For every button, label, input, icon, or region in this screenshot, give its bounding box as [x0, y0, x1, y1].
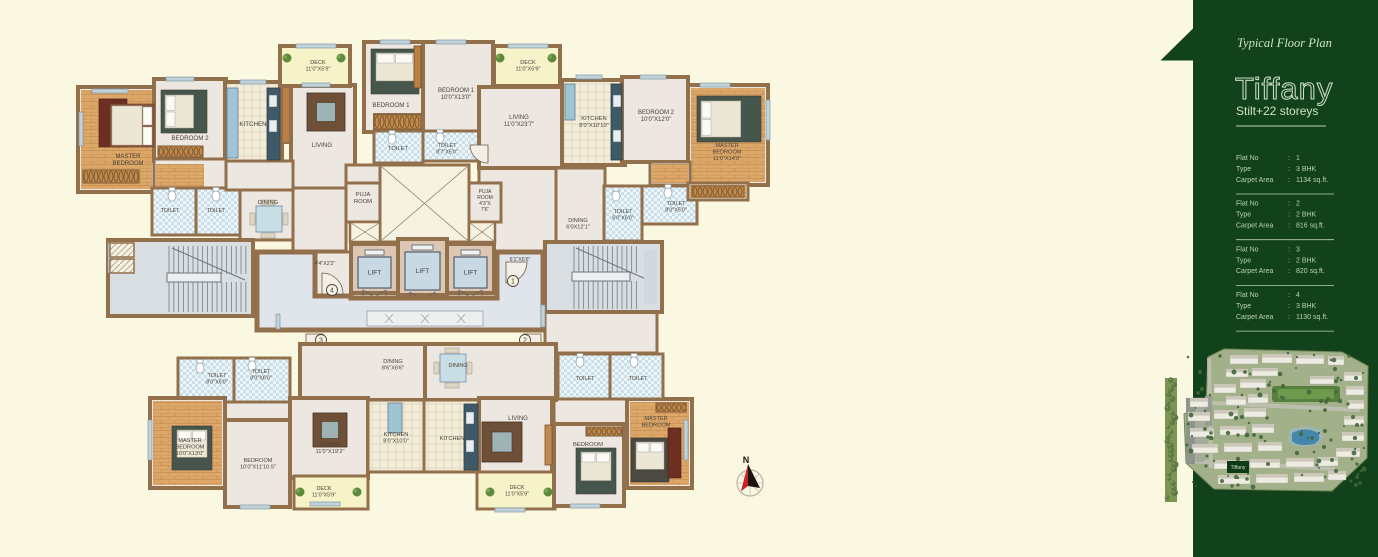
svg-text:BEDROOM: BEDROOM [176, 445, 205, 451]
svg-text:820 sq.ft.: 820 sq.ft. [1296, 268, 1325, 275]
svg-text:DINING: DINING [568, 218, 588, 224]
svg-text:Carpet Area: Carpet Area [1236, 223, 1273, 230]
svg-text:11'0"X19'2": 11'0"X19'2" [315, 449, 344, 455]
svg-text::: : [1288, 246, 1290, 253]
svg-text:10'0"X12'0": 10'0"X12'0" [641, 117, 672, 123]
svg-text:TOILET: TOILET [438, 143, 457, 149]
svg-text:TOILET: TOILET [388, 146, 409, 152]
svg-text:TOILET: TOILET [207, 208, 226, 214]
svg-text:LIVING: LIVING [508, 416, 528, 422]
svg-text:LIFT: LIFT [368, 270, 381, 277]
svg-text:TOILET: TOILET [614, 209, 633, 215]
svg-text:2 BHK: 2 BHK [1296, 212, 1317, 219]
svg-text:Carpet Area: Carpet Area [1236, 314, 1273, 321]
svg-text:BEDROOM 2: BEDROOM 2 [171, 135, 209, 142]
svg-text:MASTER: MASTER [644, 416, 667, 422]
svg-text::: : [1288, 201, 1290, 208]
svg-text::: : [1288, 177, 1290, 184]
svg-text:Type: Type [1236, 303, 1251, 310]
svg-text:LIVING: LIVING [509, 115, 529, 121]
svg-text::: : [1288, 166, 1290, 173]
svg-text:4: 4 [330, 287, 334, 294]
svg-text:Type: Type [1236, 166, 1251, 173]
svg-text:MASTER: MASTER [178, 438, 201, 444]
svg-text:10'0"X13'0": 10'0"X13'0" [176, 451, 205, 457]
svg-text:TOILET: TOILET [667, 201, 686, 207]
svg-text:LIVING: LIVING [320, 442, 339, 448]
svg-text:BEDROOM 1: BEDROOM 1 [372, 102, 410, 109]
svg-text:TOILET: TOILET [208, 373, 227, 379]
svg-text::: : [1288, 314, 1290, 321]
svg-text:DECK: DECK [317, 486, 332, 492]
svg-text:1: 1 [511, 278, 515, 285]
svg-text:Typical Floor Plan: Typical Floor Plan [1237, 36, 1332, 50]
svg-text:11'0"X5'9": 11'0"X5'9" [306, 67, 331, 73]
svg-text:PUJA: PUJA [356, 192, 371, 198]
svg-text:8'6"X6'6": 8'6"X6'6" [382, 366, 404, 372]
svg-text:ROOM: ROOM [354, 199, 372, 205]
svg-text:1130 sq.ft.: 1130 sq.ft. [1296, 314, 1328, 321]
svg-text:BEDROOM: BEDROOM [112, 161, 143, 167]
svg-text:6'0X12'1": 6'0X12'1" [566, 225, 589, 231]
svg-text:8'0"X5'0": 8'0"X5'0" [206, 379, 228, 385]
svg-text:Flat No: Flat No [1236, 246, 1259, 253]
svg-text:TOILET: TOILET [576, 376, 595, 382]
svg-text:KITCHEN: KITCHEN [384, 432, 409, 438]
svg-text:Type: Type [1236, 212, 1251, 219]
svg-text:8'7"X5'0": 8'7"X5'0" [436, 149, 458, 155]
svg-text:LIFT: LIFT [416, 268, 429, 275]
svg-text:KITCHEN: KITCHEN [440, 436, 465, 442]
svg-text:TOILET: TOILET [252, 369, 271, 375]
svg-text:DECK: DECK [520, 60, 536, 66]
svg-text:11'0"X23'7": 11'0"X23'7" [504, 122, 534, 128]
svg-text:10'0"X11'10.5": 10'0"X11'10.5" [240, 465, 276, 471]
svg-text:BEDROOM: BEDROOM [244, 458, 273, 464]
svg-text:Flat No: Flat No [1236, 201, 1259, 208]
svg-text::: : [1288, 257, 1290, 264]
svg-text:8'0"X10'0": 8'0"X10'0" [383, 439, 408, 445]
svg-text:DINING: DINING [258, 200, 279, 206]
svg-text:7'6": 7'6" [481, 207, 490, 213]
svg-text:Type: Type [1236, 257, 1251, 264]
svg-text:11'0"X5'9": 11'0"X5'9" [505, 491, 529, 497]
svg-text::: : [1288, 303, 1290, 310]
svg-text::: : [1288, 292, 1290, 299]
svg-text::: : [1288, 155, 1290, 162]
svg-text:TOILET: TOILET [629, 376, 648, 382]
svg-text:KITCHEN: KITCHEN [239, 121, 266, 128]
svg-text:N: N [743, 455, 750, 465]
svg-text:11'0"X5'9": 11'0"X5'9" [516, 67, 541, 73]
svg-text:BEDROOM 2: BEDROOM 2 [638, 110, 675, 116]
svg-text:BEDROOM: BEDROOM [573, 442, 603, 448]
svg-text:2: 2 [1296, 201, 1300, 208]
svg-text:8'0"X5'0": 8'0"X5'0" [665, 207, 687, 213]
svg-text:TOILET: TOILET [161, 208, 180, 214]
svg-text:3 BHK: 3 BHK [1296, 166, 1317, 173]
svg-text:4: 4 [1296, 292, 1300, 299]
svg-text:LIFT: LIFT [464, 270, 477, 277]
svg-text:BEDROOM: BEDROOM [713, 150, 742, 156]
svg-text:Stilt+22 storeys: Stilt+22 storeys [1236, 104, 1318, 118]
svg-text:8'0"X10'10": 8'0"X10'10" [579, 123, 609, 129]
svg-text:10'0"X13'0": 10'0"X13'0" [441, 95, 472, 101]
svg-text:6'0"X6'0": 6'0"X6'0" [612, 215, 634, 221]
svg-text:DECK: DECK [310, 60, 326, 66]
svg-text:Tiffany: Tiffany [1231, 465, 1246, 471]
svg-text:1: 1 [1296, 155, 1300, 162]
svg-text::: : [1288, 212, 1290, 219]
svg-text:Carpet Area: Carpet Area [1236, 268, 1273, 275]
svg-text:3 BHK: 3 BHK [1296, 303, 1317, 310]
svg-text:MASTER: MASTER [715, 143, 738, 149]
svg-text:4'4"X2'2": 4'4"X2'2" [315, 261, 336, 267]
svg-text:MASTER: MASTER [115, 154, 141, 160]
svg-text:Flat No: Flat No [1236, 292, 1259, 299]
svg-text:DINING: DINING [383, 359, 403, 365]
svg-text:LIVING: LIVING [312, 142, 332, 149]
svg-text:BEDROOM: BEDROOM [642, 423, 671, 429]
svg-text:6'1"X6'6": 6'1"X6'6" [510, 257, 531, 263]
svg-text:BEDROOM 1: BEDROOM 1 [438, 88, 475, 94]
svg-text:2 BHK: 2 BHK [1296, 257, 1317, 264]
svg-text:1134 sq.ft.: 1134 sq.ft. [1296, 177, 1328, 184]
svg-text::: : [1288, 268, 1290, 275]
svg-text:3: 3 [1296, 246, 1300, 253]
svg-text:Carpet Area: Carpet Area [1236, 177, 1273, 184]
svg-text::: : [1288, 223, 1290, 230]
svg-text:DINING: DINING [449, 363, 468, 369]
svg-text:816 sq.ft.: 816 sq.ft. [1296, 223, 1325, 230]
svg-text:8'0"X6'0": 8'0"X6'0" [250, 375, 272, 381]
svg-text:Tiffany: Tiffany [1235, 71, 1333, 106]
svg-text:KITCHEN: KITCHEN [581, 116, 606, 122]
svg-text:Flat No: Flat No [1236, 155, 1259, 162]
svg-text:11'0"X14'0": 11'0"X14'0" [713, 156, 741, 162]
svg-text:11'0"X5'9": 11'0"X5'9" [312, 492, 336, 498]
svg-text:DECK: DECK [510, 485, 525, 491]
